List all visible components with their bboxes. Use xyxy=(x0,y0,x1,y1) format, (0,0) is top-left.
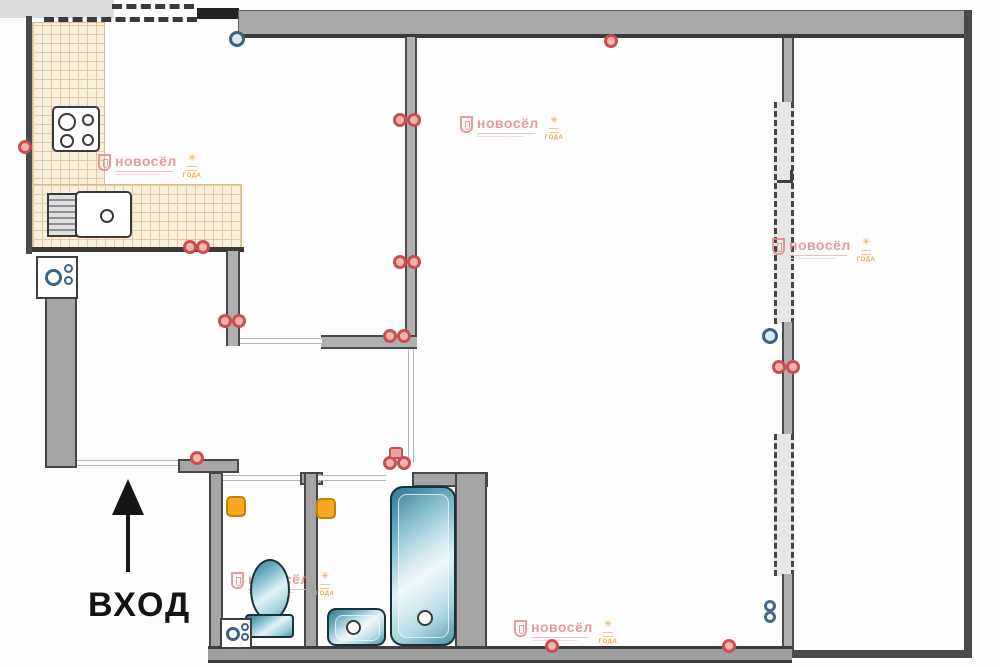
window-dashed-line-kitchen xyxy=(44,17,197,22)
partition-bracket xyxy=(790,170,793,183)
window-dashed-line-top xyxy=(112,4,194,9)
bathtub-drain-icon xyxy=(417,610,433,626)
entrance-label: ВХОД xyxy=(88,586,191,625)
toilet-tank-icon xyxy=(245,614,294,638)
riser-pair-marker xyxy=(764,611,776,623)
bathroom-top-opening xyxy=(318,475,386,481)
kitchen-drainboard-icon xyxy=(47,193,77,237)
stove-burner-icon xyxy=(82,114,94,126)
outlet-marker xyxy=(218,314,232,328)
brand-watermark: новосёл ✳ ГОДА xyxy=(772,238,867,263)
opening-kitchen-corridor xyxy=(240,338,322,344)
watermark-star-icon: ✳ xyxy=(550,116,558,126)
entrance-arrow-stem xyxy=(126,512,130,572)
riser-marker xyxy=(762,328,778,344)
right-partition-wall-top xyxy=(782,38,794,104)
outlet-marker xyxy=(196,240,210,254)
bottom-wall-right xyxy=(792,650,966,658)
outlet-marker xyxy=(383,329,397,343)
kitchen-sink-icon xyxy=(75,191,132,238)
outlet-marker xyxy=(604,34,618,48)
sink-faucet-icon xyxy=(346,620,361,635)
outlet-marker xyxy=(786,360,800,374)
stove-burner-icon xyxy=(82,134,94,146)
exterior-wall-right xyxy=(964,10,972,658)
watermark-star-icon: ✳ xyxy=(604,620,612,630)
riser-pipe-icon xyxy=(226,627,240,641)
outlet-marker xyxy=(393,255,407,269)
outlet-block-marker xyxy=(389,447,403,459)
watermark-logo-icon xyxy=(460,116,473,133)
outlet-marker xyxy=(232,314,246,328)
entrance-arrow-icon xyxy=(112,479,144,515)
watermark-badge: ГОДА xyxy=(857,257,876,263)
riser-pipe-icon xyxy=(241,623,249,631)
riser-marker xyxy=(229,31,245,47)
entrance-door-opening xyxy=(77,460,178,466)
right-partition-dashed-upper xyxy=(774,102,794,324)
plumbing-riser-box xyxy=(36,256,78,299)
exterior-wall-left-kitchen xyxy=(26,16,32,254)
exterior-wall-top xyxy=(238,10,972,38)
toilet-icon xyxy=(250,559,290,621)
outlet-marker xyxy=(183,240,197,254)
bathtub-icon xyxy=(390,486,456,646)
watermark-brand: новосёл xyxy=(789,238,851,253)
watermark-badge: ГОДА xyxy=(316,591,335,597)
balcony-strip xyxy=(0,0,114,18)
watermark-logo-icon xyxy=(772,238,785,255)
outlet-marker xyxy=(190,451,204,465)
watermark-brand: новосёл xyxy=(477,116,539,131)
riser-pipe-icon xyxy=(64,264,73,273)
stove-burner-icon xyxy=(58,113,76,131)
outlet-marker xyxy=(407,113,421,127)
right-partition-dashed-lower xyxy=(774,434,794,576)
kitchen-counter-edge xyxy=(32,247,244,252)
outlet-marker xyxy=(397,329,411,343)
watermark-badge: ГОДА xyxy=(183,173,202,179)
opening-corridor-living xyxy=(408,349,414,463)
watermark-brand: новосёл xyxy=(115,154,177,169)
watermark-star-icon: ✳ xyxy=(188,154,196,164)
toilet-room-top-opening xyxy=(223,475,301,481)
outlet-marker xyxy=(772,360,786,374)
bathroom-sink-icon xyxy=(327,608,386,646)
stove-icon xyxy=(52,106,100,152)
hall-left-wall xyxy=(45,294,77,468)
exterior-wall-top-lintel xyxy=(197,8,239,19)
outlet-marker xyxy=(18,140,32,154)
toilet-bath-divider-wall xyxy=(304,472,318,650)
outlet-marker xyxy=(545,639,559,653)
watermark-star-icon: ✳ xyxy=(321,572,329,582)
interior-wall-corridor xyxy=(226,251,240,346)
watermark-badge: ГОДА xyxy=(545,135,564,141)
outlet-marker xyxy=(722,639,736,653)
watermark-logo-icon xyxy=(98,154,111,171)
watermark-logo-icon xyxy=(231,572,244,589)
outlet-marker xyxy=(407,255,421,269)
watermark-brand: новосёл xyxy=(531,620,593,635)
riser-pipe-icon xyxy=(45,269,62,286)
door-marker xyxy=(226,496,246,517)
door-marker xyxy=(316,498,336,519)
plumbing-riser-box-toilet xyxy=(220,618,252,649)
watermark-badge: ГОДА xyxy=(599,639,618,645)
riser-pipe-icon xyxy=(64,276,73,285)
right-partition-wall-mid xyxy=(782,322,794,436)
right-partition-wall-bottom xyxy=(782,574,794,652)
brand-watermark: новосёл ✳ ГОДА xyxy=(514,620,609,645)
watermark-logo-icon xyxy=(514,620,527,637)
brand-watermark: новосёл ✳ ГОДА xyxy=(460,116,555,141)
riser-pipe-icon xyxy=(241,633,249,641)
interior-wall-kitchen-living xyxy=(405,37,417,349)
sink-drain-icon xyxy=(100,209,114,223)
brand-watermark: новосёл ✳ ГОДА xyxy=(98,154,193,179)
bathroom-right-wall xyxy=(455,472,487,650)
entrance-wall-header xyxy=(178,459,239,473)
floor-plan: ВХОД новосёл ✳ ГОДА новосёл ✳ ГОДА новос… xyxy=(0,0,1000,667)
outlet-marker xyxy=(393,113,407,127)
stove-burner-icon xyxy=(60,134,74,148)
bottom-wall-left xyxy=(208,646,792,663)
watermark-star-icon: ✳ xyxy=(862,238,870,248)
